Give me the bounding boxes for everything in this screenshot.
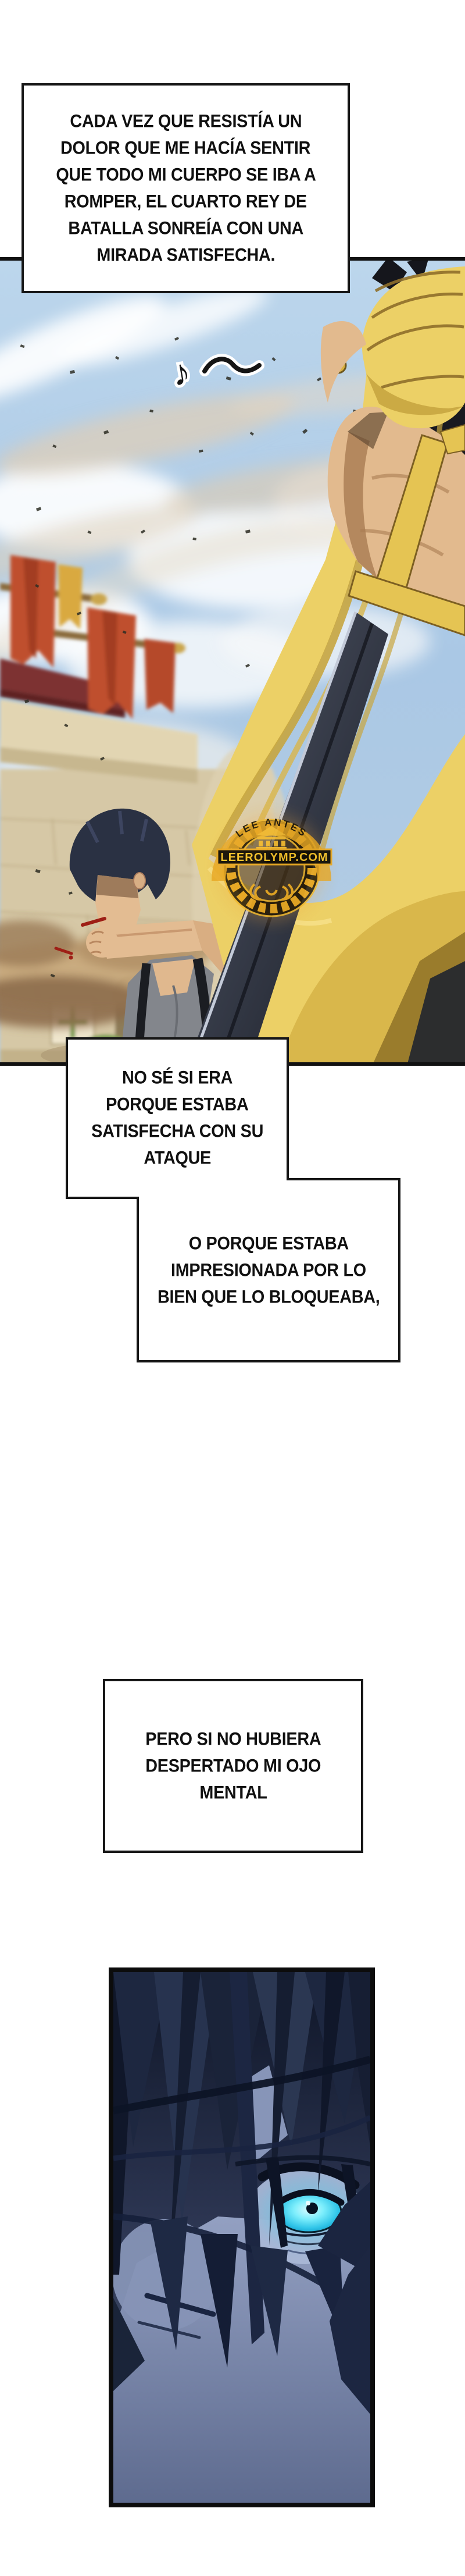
narration-line: ROMPER, EL CUARTO REY DE	[65, 187, 307, 216]
narration-line: PERO SI NO HUBIERA	[145, 1725, 321, 1753]
narration-line: NO SÉ SI ERA	[122, 1064, 233, 1093]
comic-page: ♪ LEE ANTES	[0, 0, 465, 2576]
narration-line: DOLOR QUE ME HACÍA SENTIR	[60, 134, 310, 162]
bottom-panel-art	[113, 1972, 370, 2503]
narration-line: BIEN QUE LO BLOQUEABA,	[158, 1283, 380, 1311]
narration-line: DESPERTADO MI OJO	[145, 1752, 321, 1780]
narration-line: O PORQUE ESTABA	[188, 1229, 348, 1258]
narration-box-3: O PORQUE ESTABA IMPRESIONADA POR LO BIEN…	[138, 1179, 399, 1361]
narration-line: PORQUE ESTABA	[106, 1091, 248, 1119]
main-panel-art: ♪ LEE ANTES	[0, 257, 465, 1066]
narration-line: ATAQUE	[144, 1144, 211, 1173]
narration-line: IMPRESIONADA POR LO	[171, 1256, 366, 1285]
narration-line: MENTAL	[199, 1778, 267, 1807]
narration-box-1: CADA VEZ QUE RESISTÍA UN DOLOR QUE ME HA…	[22, 83, 350, 293]
narration-line: CADA VEZ QUE RESISTÍA UN	[70, 107, 302, 136]
narration-line: QUE TODO MI CUERPO SE IBA A	[56, 161, 316, 189]
narration-box-2: NO SÉ SI ERA PORQUE ESTABA SATISFECHA CO…	[67, 1038, 288, 1198]
narration-box-4: PERO SI NO HUBIERA DESPERTADO MI OJO MEN…	[103, 1679, 363, 1853]
narration-line: SATISFECHA CON SU	[91, 1118, 263, 1146]
narration-line: BATALLA SONREÍA CON UNA	[68, 214, 303, 243]
watermark-site-text: LEEROLYMP.COM	[220, 851, 328, 864]
narration-line: MIRADA SATISFECHA.	[96, 241, 275, 269]
bottom-panel	[109, 1967, 375, 2507]
